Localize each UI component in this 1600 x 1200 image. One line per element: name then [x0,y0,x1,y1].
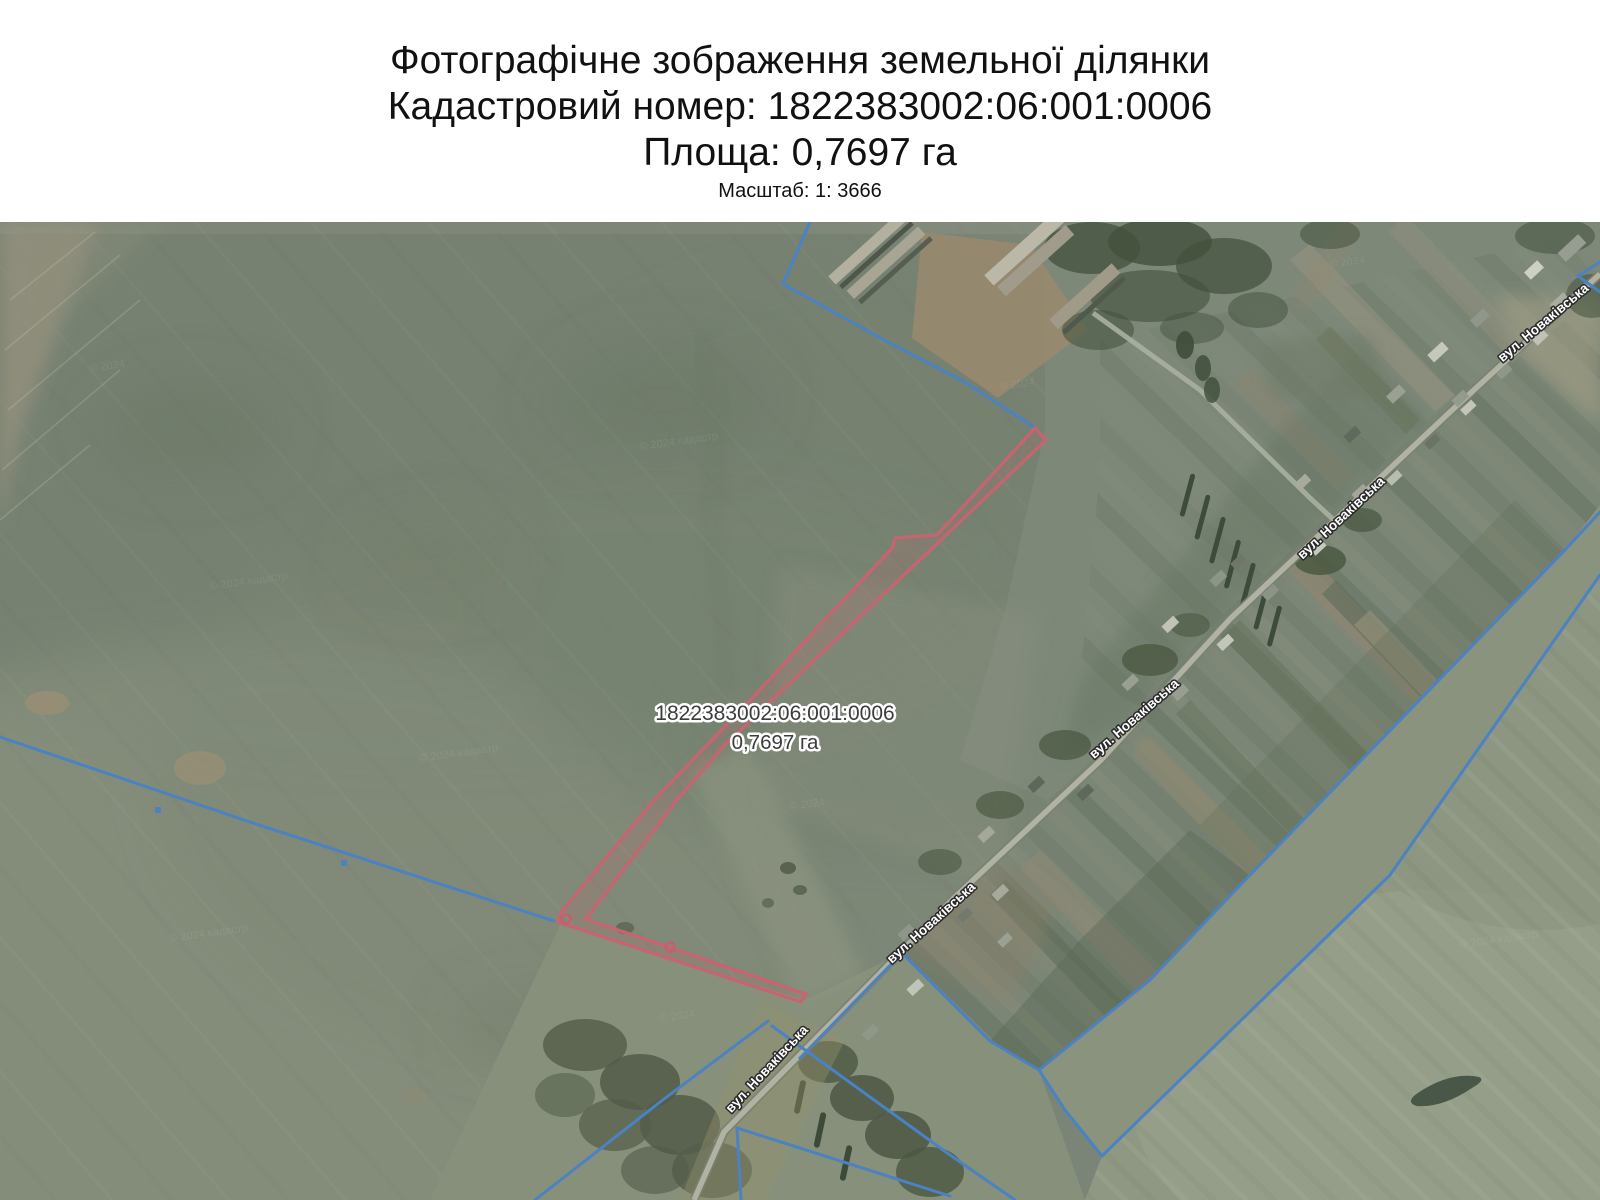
svg-text:1822383002:06:001:0006: 1822383002:06:001:0006 [655,702,894,725]
svg-text:0,7697 га: 0,7697 га [732,731,819,754]
